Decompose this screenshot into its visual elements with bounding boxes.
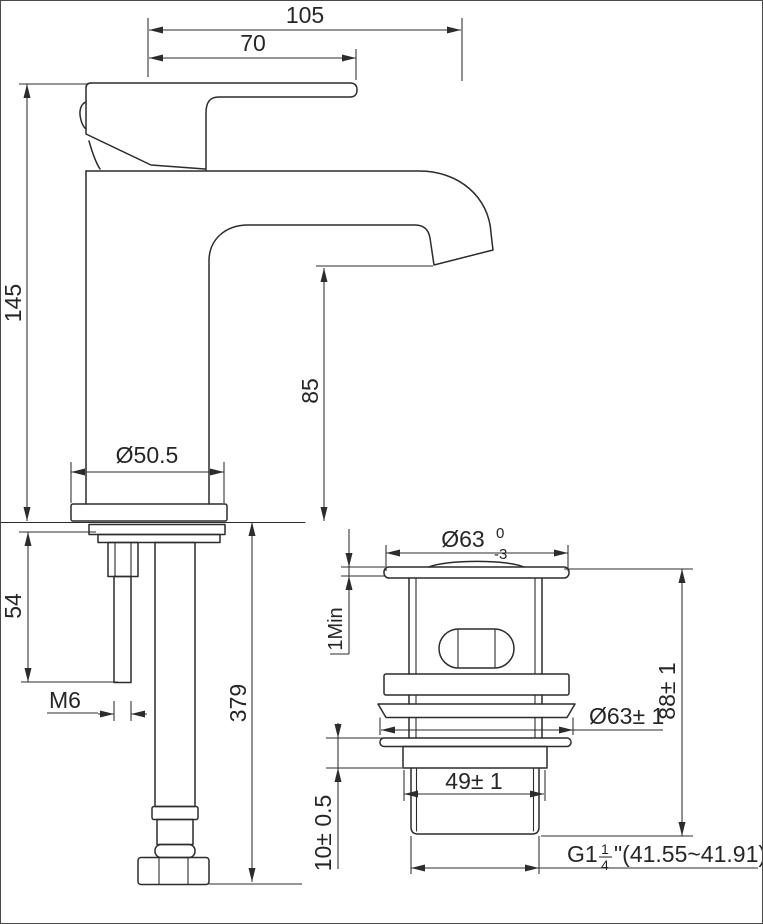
dimension-body-width: 49± 1	[404, 768, 545, 801]
dimension-base-diameter: Ø50.5	[71, 442, 224, 503]
dim-label-cap-tol-lower: -3	[494, 546, 507, 563]
faucet-body-spout-outline	[71, 171, 493, 521]
hose-hex-nut	[138, 858, 209, 885]
drain-cap-dome	[429, 561, 524, 567]
dim-label-54: 54	[1, 593, 26, 619]
dim-label-10: 10± 0.5	[310, 795, 336, 872]
dimension-stud-thread: M6	[47, 687, 147, 721]
dim-label-thread-prefix: G1	[567, 841, 598, 867]
handle-set-screw-bump	[80, 102, 86, 129]
dimension-cap-edge-min: 1Min	[325, 529, 385, 654]
dim-label-base-diameter: Ø50.5	[116, 442, 179, 468]
dimension-body-height: 145	[1, 84, 89, 521]
dimension-overall-reach: 105	[148, 2, 462, 81]
dim-label-cap-diameter: Ø63	[441, 526, 484, 552]
drain-assembly-view: Ø63 0 -3 1Min Ø63± 1 88± 1 49± 1	[310, 525, 762, 874]
dim-label-85: 85	[297, 378, 323, 404]
hose-collar	[152, 807, 198, 820]
dim-label-1min: 1Min	[325, 607, 347, 650]
dimension-stud-length: 54	[1, 532, 118, 682]
threaded-stud	[114, 577, 131, 683]
dimension-handle-reach: 70	[149, 30, 356, 80]
faucet-side-view: 105 70 145 85 Ø50.5	[1, 2, 493, 885]
dimension-thread-spec: G1 1 4 "(41.55~41.91)	[411, 836, 762, 874]
dimension-hose-length: 379	[208, 522, 302, 884]
dim-label-cap-tol-upper: 0	[496, 525, 504, 542]
dimension-spout-height: 85	[297, 266, 433, 521]
dim-label-379: 379	[225, 684, 251, 722]
dimension-cap-diameter: Ø63 0 -3	[386, 525, 568, 571]
dim-label-49: 49± 1	[445, 768, 502, 794]
stud-hex-section	[108, 543, 138, 577]
dim-label-m6: M6	[49, 687, 81, 713]
under-counter-parts	[89, 525, 225, 885]
technical-drawing-sheet: 105 70 145 85 Ø50.5	[0, 0, 763, 924]
dim-label-145: 145	[1, 284, 26, 322]
dim-label-70: 70	[240, 30, 266, 56]
dim-label-flange-diameter: Ø63± 1	[589, 703, 664, 729]
dim-label-thread-frac-num: 1	[601, 841, 609, 857]
drain-cap-plate	[384, 567, 569, 578]
drain-gasket	[378, 704, 575, 718]
overflow-slot	[439, 629, 514, 668]
braided-hose	[155, 543, 195, 807]
dim-label-thread-frac-den: 4	[601, 857, 609, 873]
base-plate	[71, 504, 227, 521]
dim-label-105: 105	[286, 2, 324, 28]
drain-flange-ring	[384, 674, 569, 695]
dimension-neck-height: 10± 0.5	[310, 723, 402, 871]
dim-label-88: 88± 1	[654, 662, 680, 719]
dim-label-thread-suffix: "(41.55~41.91)	[614, 841, 762, 867]
faucet-handle-outline	[80, 83, 357, 170]
faucet-dimension-drawing: 105 70 145 85 Ø50.5	[1, 1, 762, 923]
hose-shoulder	[155, 845, 195, 858]
hose-ribbed-section	[157, 820, 193, 845]
dimension-flange-diameter: Ø63± 1	[380, 703, 664, 735]
drain-locknut-plate	[380, 738, 571, 747]
drain-mount-section	[403, 747, 547, 769]
